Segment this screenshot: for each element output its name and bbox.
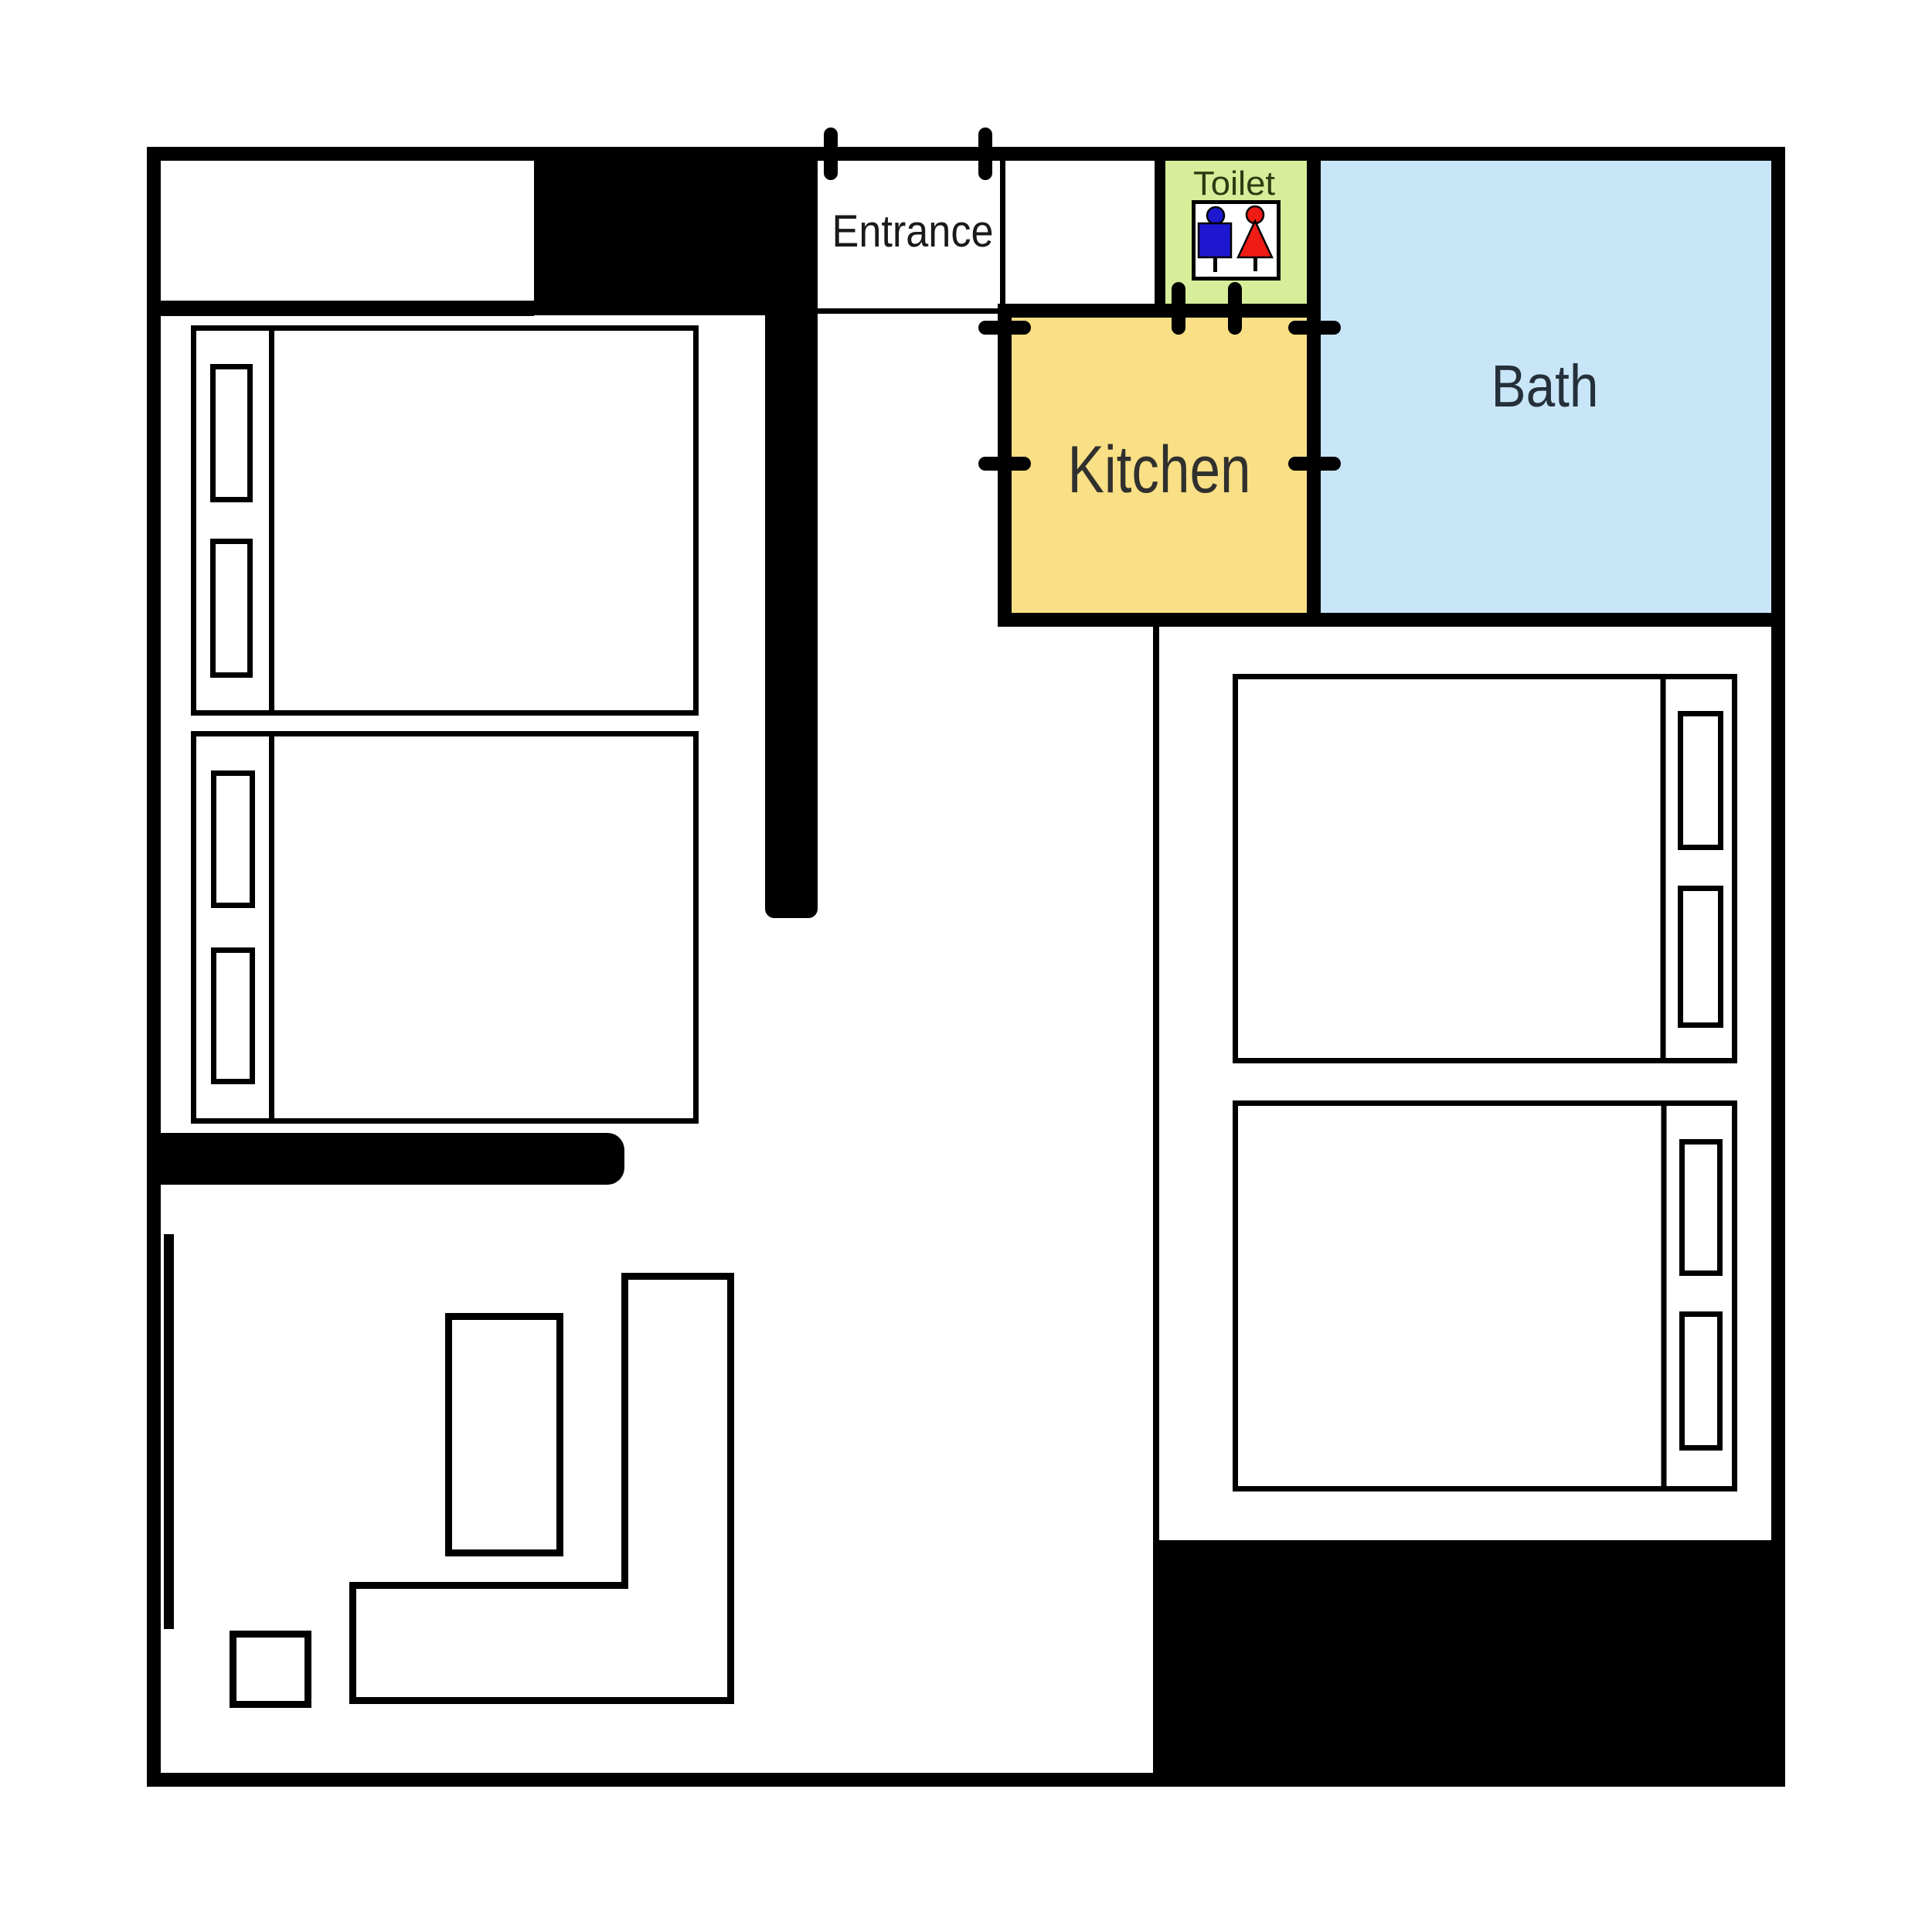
svg-text:Toilet: Toilet (1193, 165, 1275, 202)
svg-text:Bath: Bath (1492, 353, 1599, 420)
svg-text:Entrance: Entrance (832, 206, 994, 257)
svg-text:Kitchen: Kitchen (1068, 433, 1251, 507)
